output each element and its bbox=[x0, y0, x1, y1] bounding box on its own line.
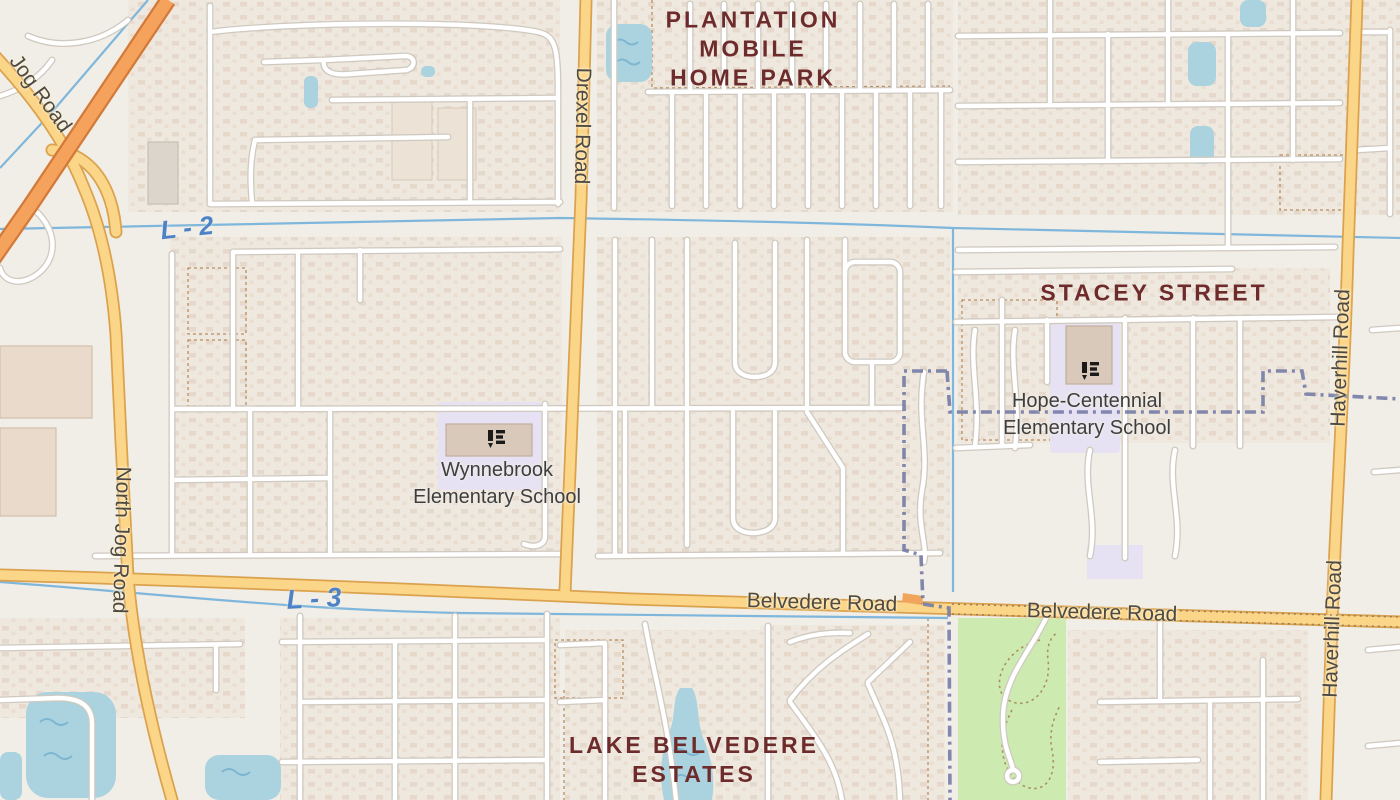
map-canvas[interactable]: PLANTATION MOBILE HOME PARK STACEY STREE… bbox=[0, 0, 1400, 800]
place-label-plantation: PLANTATION MOBILE HOME PARK bbox=[666, 6, 841, 93]
place-label-stacey-street: STACEY STREET bbox=[1040, 279, 1267, 308]
map-graphics bbox=[0, 0, 1400, 800]
road-label-belvedere-west: Belvedere Road bbox=[746, 589, 897, 617]
road-label-haverhill-south: Haverhill Road bbox=[1319, 560, 1348, 698]
road-label-haverhill-north: Haverhill Road bbox=[1327, 289, 1356, 427]
road-label-north-jog: North Jog Road bbox=[107, 466, 135, 614]
school-icon bbox=[1079, 359, 1103, 383]
school-label-wynnebrook: Wynnebrook Elementary School bbox=[413, 457, 581, 511]
water-label-l3: L - 3 bbox=[286, 582, 343, 616]
road-label-belvedere-east: Belvedere Road bbox=[1026, 599, 1177, 627]
water-label-l2: L - 2 bbox=[159, 210, 215, 246]
school-label-hope-centennial: Hope-Centennial Elementary School bbox=[1003, 388, 1171, 442]
road-label-drexel: Drexel Road bbox=[569, 67, 595, 184]
school-icon bbox=[485, 427, 509, 451]
place-label-lake-belvedere: LAKE BELVEDERE ESTATES bbox=[569, 731, 819, 789]
